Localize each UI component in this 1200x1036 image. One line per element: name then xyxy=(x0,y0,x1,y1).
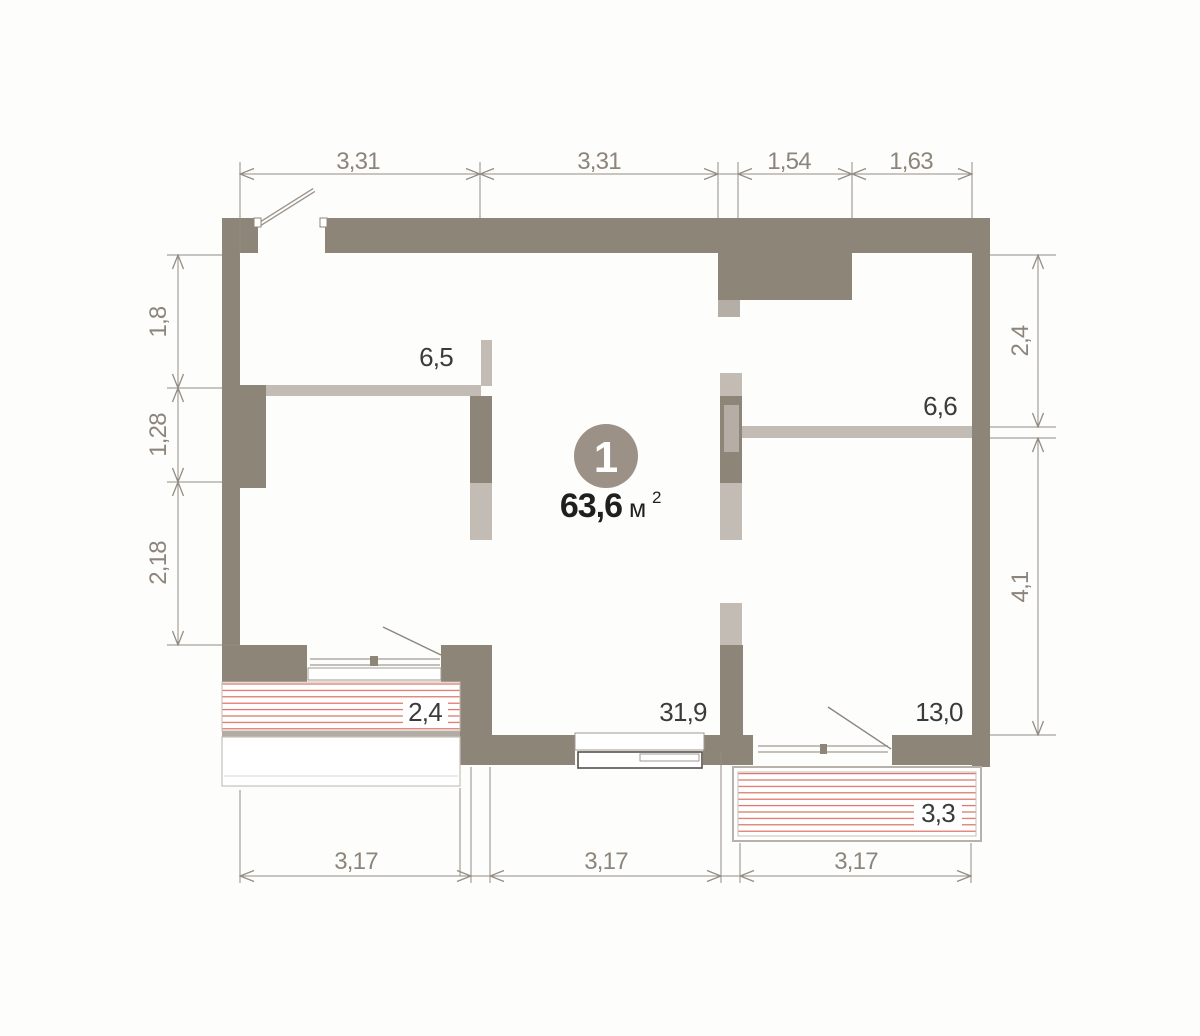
wall-center-partition-d xyxy=(720,603,742,645)
room-label-bottom-right: 13,0 xyxy=(915,697,963,727)
wall-top-protrusion xyxy=(718,253,852,300)
entrance-door-hinge xyxy=(254,218,261,227)
wall-center-partition-e xyxy=(720,645,743,735)
wall-room13-south xyxy=(892,735,972,765)
dim-bottom-1: 3,17 xyxy=(334,848,378,875)
wall-right xyxy=(972,253,990,767)
total-area-superscript: 2 xyxy=(652,488,661,507)
wall-left-upper xyxy=(222,253,240,385)
entrance-door-jamb-mark xyxy=(320,218,327,227)
wall-living-south-left xyxy=(462,735,575,765)
dim-top-4: 1,63 xyxy=(889,148,933,175)
floor-plan-page: 3,31 3,31 1,54 1,63 1,8 1,28 2,18 2,4 4,… xyxy=(0,0,1200,1036)
wall-living-south-right xyxy=(703,735,753,765)
wall-left-pier xyxy=(222,385,266,488)
kitchen-window-mullion xyxy=(370,656,378,666)
total-area: 63,6 м 2 xyxy=(560,487,662,525)
wall-hall-partition-thin xyxy=(481,340,492,386)
balcony-left-parapet xyxy=(222,731,460,737)
wall-protrusion-stub xyxy=(718,300,740,317)
total-area-value: 63,6 xyxy=(560,487,622,525)
wall-top xyxy=(325,218,990,253)
room13-balcony-door-swing xyxy=(828,707,891,749)
room-label-balcony-right: 3,3 xyxy=(921,798,955,828)
total-area-unit: м xyxy=(629,495,646,523)
dim-left-3: 2,18 xyxy=(145,541,172,585)
dim-bottom-3: 3,17 xyxy=(834,848,878,875)
dim-top-3: 1,54 xyxy=(767,148,811,175)
entrance-door-leaf-inner xyxy=(260,190,314,224)
wall-hall-south xyxy=(266,385,481,396)
kitchen-window-sill xyxy=(308,668,441,680)
unit-number: 1 xyxy=(594,433,618,482)
wall-center-door-frame xyxy=(724,405,739,452)
living-window-sill-step xyxy=(640,754,699,761)
dim-right-1: 2,4 xyxy=(1007,325,1034,356)
wall-center-partition-a xyxy=(720,373,742,396)
dim-top-1: 3,31 xyxy=(336,148,380,175)
room-label-top-right: 6,6 xyxy=(923,391,957,421)
wall-divider-rooms-right xyxy=(742,426,972,438)
dim-left-2: 1,28 xyxy=(145,413,172,457)
dim-bottom-2: 3,17 xyxy=(584,848,628,875)
wall-hall-partition-dark xyxy=(470,396,492,483)
wall-kitchen-south xyxy=(222,645,307,682)
floor-plan-svg: 3,31 3,31 1,54 1,63 1,8 1,28 2,18 2,4 4,… xyxy=(0,0,1200,1036)
room-label-living: 31,9 xyxy=(659,697,707,727)
living-window xyxy=(575,733,704,750)
room13-window-mullion xyxy=(820,744,827,754)
wall-center-partition-c xyxy=(720,483,742,540)
wall-hall-partition-light xyxy=(470,483,492,540)
dim-left-1: 1,8 xyxy=(145,306,172,337)
room-label-balcony-left: 2,4 xyxy=(408,697,442,727)
wall-left-lower xyxy=(222,488,240,645)
dim-top-2: 3,31 xyxy=(577,148,621,175)
dim-right-2: 4,1 xyxy=(1007,571,1034,602)
kitchen-balcony-door-swing xyxy=(383,627,441,655)
room-label-top-left: 6,5 xyxy=(419,342,453,372)
unit-badge[interactable]: 1 xyxy=(574,424,638,488)
balcony-left-deck xyxy=(222,737,460,786)
